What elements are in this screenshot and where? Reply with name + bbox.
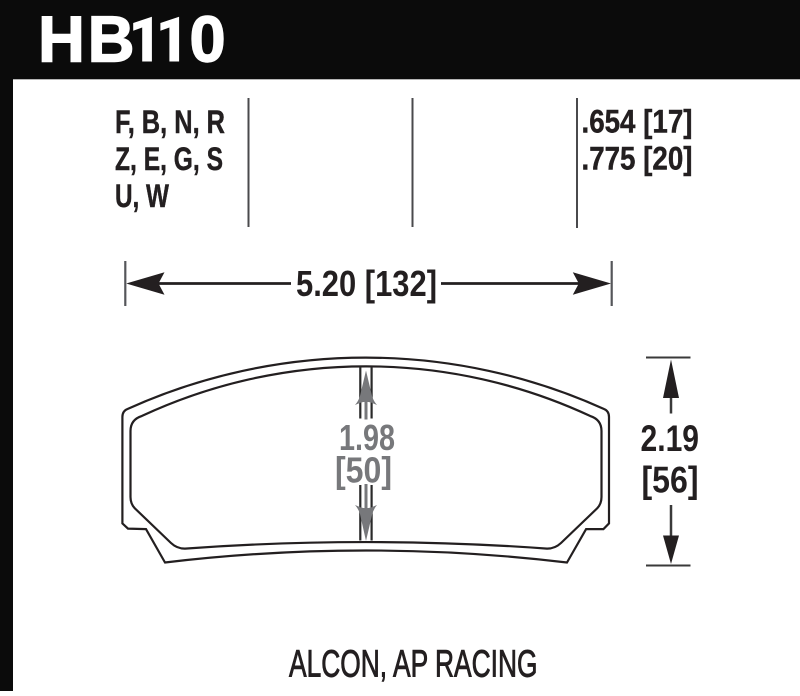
svg-text:.654 [17]: .654 [17]: [582, 104, 693, 140]
svg-text:Z, E, G, S: Z, E, G, S: [115, 141, 223, 177]
svg-text:U, W: U, W: [115, 178, 170, 214]
svg-text:2.19: 2.19: [641, 418, 700, 459]
svg-text:[50]: [50]: [335, 450, 392, 491]
svg-text:ALCON, AP RACING: ALCON, AP RACING: [289, 644, 538, 686]
svg-text:F, B, N, R: F, B, N, R: [115, 104, 225, 140]
svg-text:5.20 [132]: 5.20 [132]: [296, 263, 437, 304]
svg-text:[56]: [56]: [642, 460, 699, 501]
svg-text:0: 0: [190, 3, 226, 76]
svg-text:.775 [20]: .775 [20]: [582, 141, 693, 177]
svg-text:HB: HB: [38, 3, 137, 76]
